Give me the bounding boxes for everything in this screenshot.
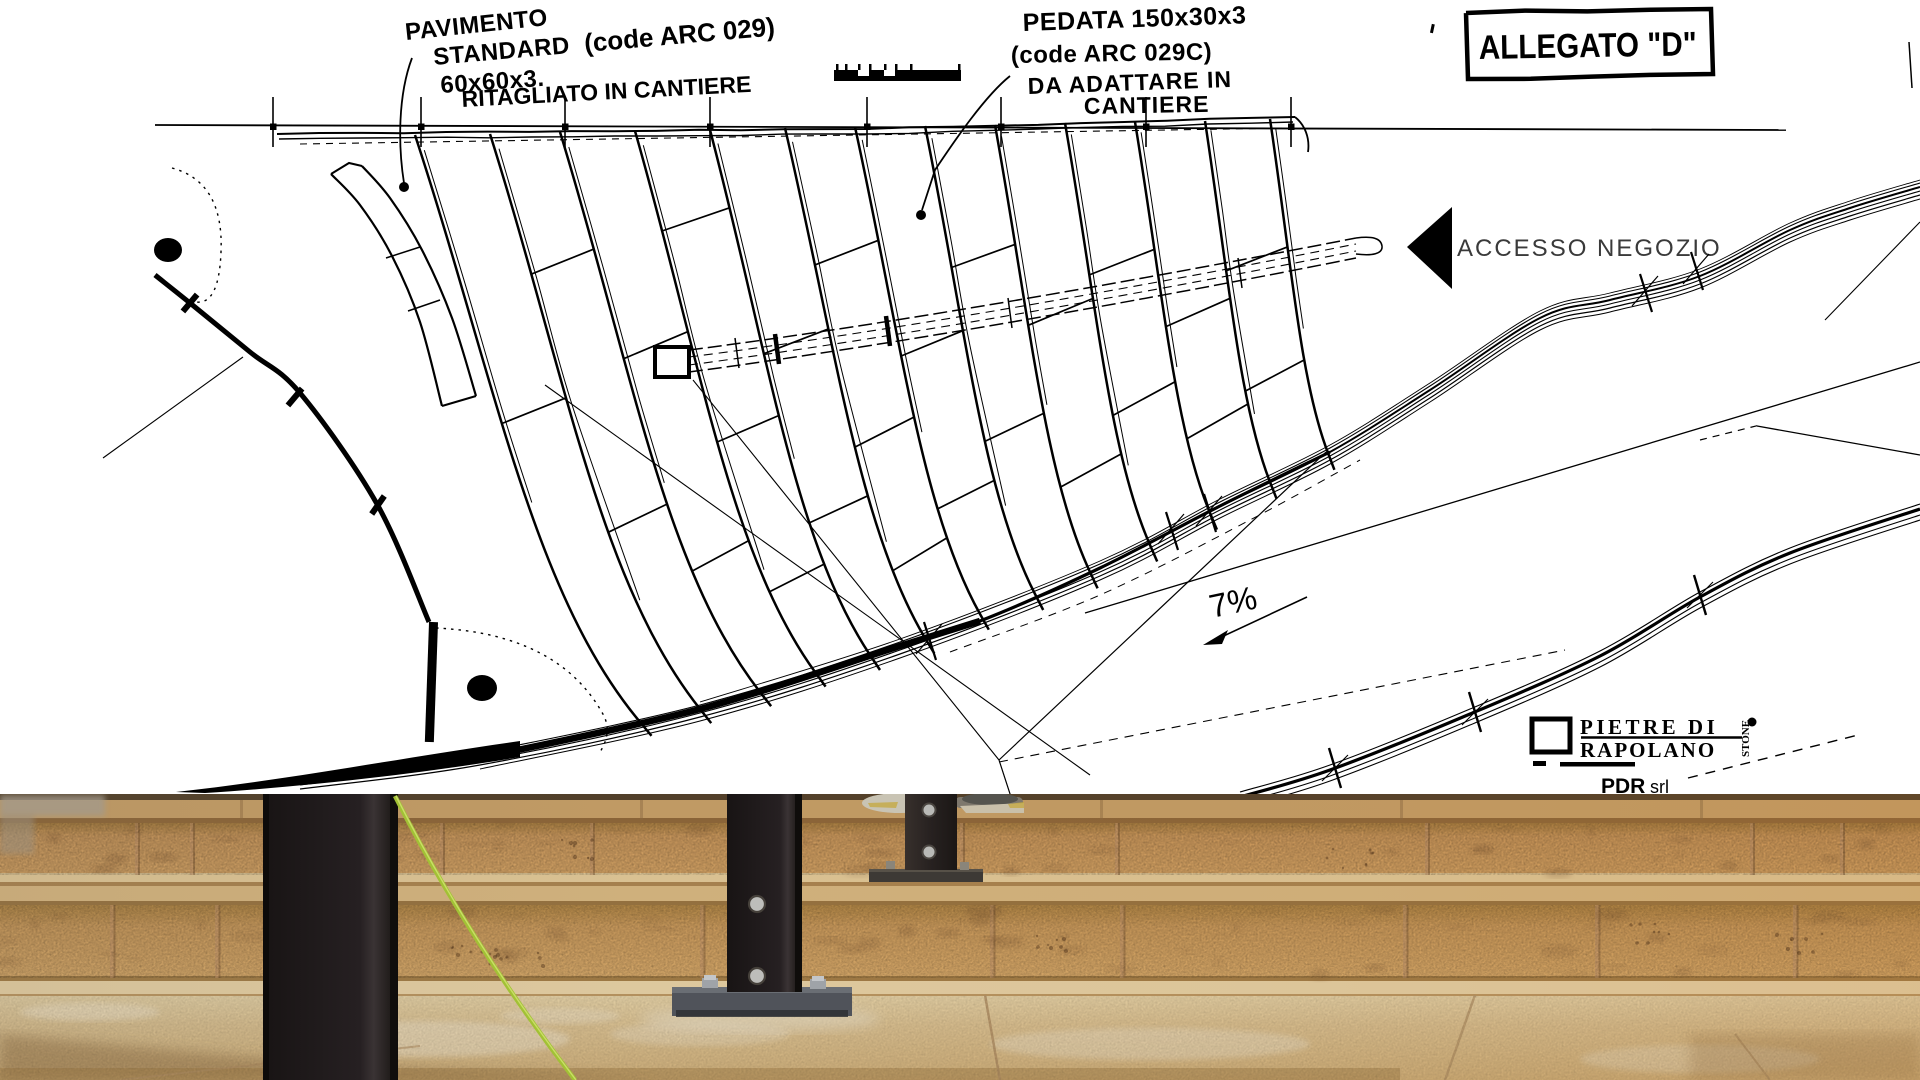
svg-text:ALLEGATO "D": ALLEGATO "D" bbox=[1478, 25, 1697, 67]
svg-text:7%: 7% bbox=[1206, 579, 1260, 625]
svg-text:(code ARC 029): (code ARC 029) bbox=[583, 11, 776, 58]
svg-text:PEDATA 150x30x3: PEDATA 150x30x3 bbox=[1022, 1, 1247, 37]
svg-text:srl: srl bbox=[1650, 777, 1669, 795]
svg-text:(code ARC 029C): (code ARC 029C) bbox=[1011, 38, 1213, 69]
svg-text:ACCESSO NEGOZIO: ACCESSO NEGOZIO bbox=[1457, 235, 1722, 262]
svg-text:PIETRE DI: PIETRE DI bbox=[1580, 715, 1718, 739]
svg-text:RAPOLANO: RAPOLANO bbox=[1580, 738, 1716, 762]
svg-text:CANTIERE: CANTIERE bbox=[1084, 91, 1210, 119]
svg-text:PDR: PDR bbox=[1601, 775, 1645, 795]
